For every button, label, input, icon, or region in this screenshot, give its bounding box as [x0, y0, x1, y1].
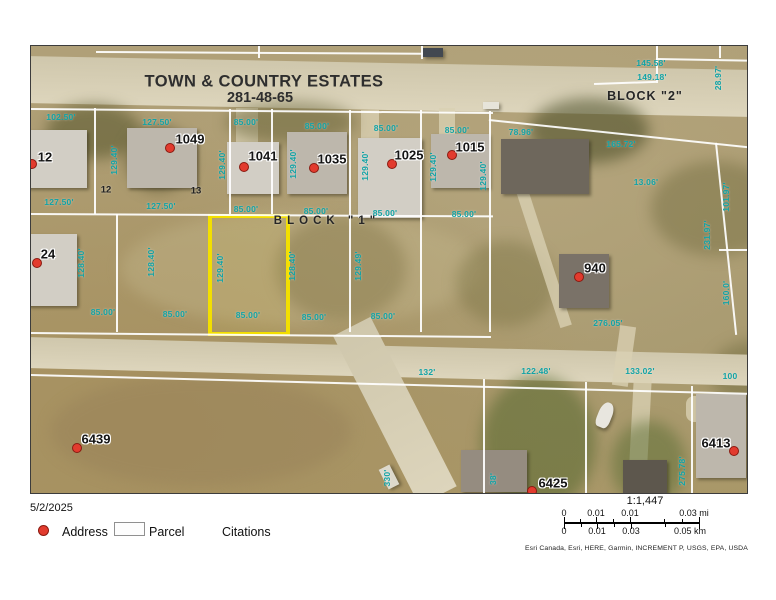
scale-km-label: 0.01	[588, 526, 606, 536]
subdivision-title: TOWN & COUNTRY ESTATES	[145, 73, 384, 92]
dimension-label: 85.00'	[91, 307, 116, 317]
dimension-label: 165.72'	[606, 139, 635, 149]
legend-citations-label: Citations	[222, 525, 271, 539]
parcel-line	[31, 374, 748, 394]
address-label: 12	[38, 150, 52, 165]
dimension-label: 38'	[488, 473, 498, 485]
address-label: 1041	[249, 149, 278, 164]
parcel-line	[715, 143, 737, 335]
dimension-label: 85.00'	[236, 310, 261, 320]
block-label: BLOCK "1"	[274, 215, 380, 227]
scale-km-label: 0.03	[622, 526, 640, 536]
dimension-label: 85.00'	[234, 204, 259, 214]
dimension-label: 276.05'	[593, 318, 622, 328]
address-dot	[527, 486, 537, 494]
legend-parcel-label: Parcel	[149, 525, 184, 539]
dimension-label: 129.40'	[109, 145, 119, 174]
dimension-label: 13.06'	[634, 177, 659, 187]
parcel-line	[31, 332, 491, 338]
map-annotations: 102.50'127.50'85.00'85.00'85.00'85.00'14…	[31, 46, 747, 493]
dimension-label: 129.40'	[428, 152, 438, 181]
dimension-label: 28.97'	[713, 66, 723, 91]
parcel-legend-icon	[114, 522, 145, 536]
scale-bar: 1:1,447 0 0.01 0.01 0.03 mi 0 0.01 0.03 …	[556, 495, 736, 537]
dimension-label: 129.40'	[360, 151, 370, 180]
parcel-line	[421, 46, 423, 59]
dimension-label: 128.40'	[76, 248, 86, 277]
address-label: 6413	[702, 436, 731, 451]
parcel-line	[420, 110, 422, 332]
dimension-label: 85.00'	[234, 117, 259, 127]
page: 102.50'127.50'85.00'85.00'85.00'85.00'14…	[0, 0, 776, 600]
parcel-map: 102.50'127.50'85.00'85.00'85.00'85.00'14…	[30, 45, 748, 494]
dimension-label: 85.00'	[452, 209, 477, 219]
dimension-label: 101.97'	[721, 182, 731, 211]
address-label: 1015	[456, 140, 485, 155]
dimension-label: 78.96'	[509, 127, 534, 137]
parcel-line	[691, 386, 693, 493]
address-dot	[72, 443, 82, 453]
parcel-line	[719, 249, 748, 251]
dimension-label: 85.00'	[30, 306, 31, 316]
dimension-label: 85.00'	[305, 121, 330, 131]
scale-ratio: 1:1,447	[577, 495, 713, 507]
address-dot	[165, 143, 175, 153]
parcel-line	[719, 46, 721, 58]
map-date: 5/2/2025	[30, 502, 73, 514]
address-label: 24	[41, 247, 55, 262]
parcel-line	[483, 379, 485, 493]
dimension-label: 275.78'	[677, 456, 687, 485]
dimension-label: 85.00'	[302, 312, 327, 322]
dimension-label: 127.50'	[44, 197, 73, 207]
address-dot	[574, 272, 584, 282]
dimension-label: 85.00'	[445, 125, 470, 135]
dimension-label: 100	[723, 371, 738, 381]
parcel-line	[31, 108, 493, 114]
address-dot	[30, 159, 37, 169]
scale-km-label: 0.05 km	[674, 526, 706, 536]
address-label: 1049	[176, 132, 205, 147]
dimension-label: 129.40'	[288, 149, 298, 178]
scale-bar-line	[564, 522, 700, 524]
dimension-label: 160.0'	[721, 281, 731, 306]
address-label: 6425	[539, 476, 568, 491]
parcel-line	[585, 382, 587, 493]
dimension-label: 127.50'	[146, 201, 175, 211]
scale-km-label: 0	[561, 526, 566, 536]
address-dot	[239, 162, 249, 172]
address-label: 1025	[395, 148, 424, 163]
parcel-line	[656, 58, 747, 61]
block-label: BLOCK "2"	[607, 89, 683, 103]
dimension-label: 128.40'	[287, 251, 297, 280]
dimension-label: 122.48'	[521, 366, 550, 376]
dimension-label: 149.18'	[637, 72, 666, 82]
dimension-label: 231.97'	[702, 220, 712, 249]
dimension-label: 133.02'	[625, 366, 654, 376]
parcel-line	[31, 213, 493, 217]
lot-number: 13	[191, 186, 202, 197]
dimension-label: 330'	[382, 469, 392, 486]
dimension-label: 85.00'	[163, 309, 188, 319]
dimension-label: 132'	[418, 367, 435, 377]
legend: Address Parcel Citations	[0, 520, 420, 544]
parcel-line	[229, 109, 231, 214]
scale-mi-label: 0.03 mi	[679, 508, 709, 518]
dimension-label: 129.40'	[478, 161, 488, 190]
parcel-line	[116, 214, 118, 332]
attribution: Esri Canada, Esri, HERE, Garmin, INCREME…	[525, 545, 748, 552]
subdivision-number: 281-48-65	[227, 90, 293, 106]
dimension-label: 102.50'	[46, 112, 75, 122]
parcel-line	[94, 108, 96, 214]
dimension-label: 145.58'	[636, 58, 665, 68]
address-label: 1035	[318, 152, 347, 167]
dimension-label: 85.00'	[374, 123, 399, 133]
address-label: 940	[584, 261, 606, 276]
lot-number: 12	[101, 185, 112, 196]
legend-address-label: Address	[62, 525, 108, 539]
dimension-label: 129.40'	[217, 150, 227, 179]
parcel-line	[258, 46, 260, 58]
parcel-line	[489, 111, 491, 332]
dimension-label: 129.49'	[353, 251, 363, 280]
dimension-label: 128.40'	[146, 247, 156, 276]
dimension-label: 85.00'	[371, 311, 396, 321]
dimension-label: 129.40'	[215, 253, 225, 282]
dimension-label: 127.50'	[142, 117, 171, 127]
address-legend-icon	[38, 525, 49, 536]
address-label: 6439	[82, 432, 111, 447]
